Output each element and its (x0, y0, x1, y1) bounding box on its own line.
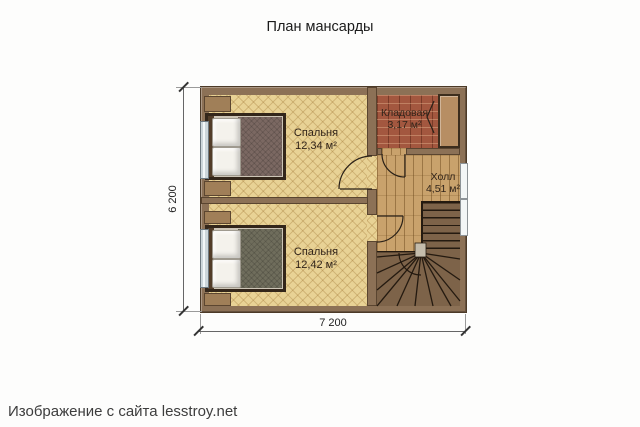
floor-plan: Спальня 12,34 м² Спальня 12,42 м² Кладов… (200, 86, 467, 313)
door-leaf-closet (427, 101, 434, 133)
dimension-height-label: 6 200 (167, 177, 181, 221)
door-arc-storage (382, 154, 405, 177)
footer-credit: Изображение с сайта lesstroy.net (8, 403, 237, 420)
page-title: План мансарды (0, 19, 640, 35)
door-arc-bedroom-top (339, 156, 372, 189)
dimension-height-line (183, 87, 184, 311)
door-arc-bedroom-bottom (377, 216, 403, 242)
stair-landing (415, 243, 426, 257)
dimension-width-line (198, 331, 466, 332)
winder-treads (377, 252, 460, 306)
screenshot-page: План мансарды Спальня 12,34 м² Спальня 1… (0, 0, 640, 427)
dimension-width-label: 7 200 (300, 317, 366, 329)
plan-linework-svg (201, 87, 468, 314)
